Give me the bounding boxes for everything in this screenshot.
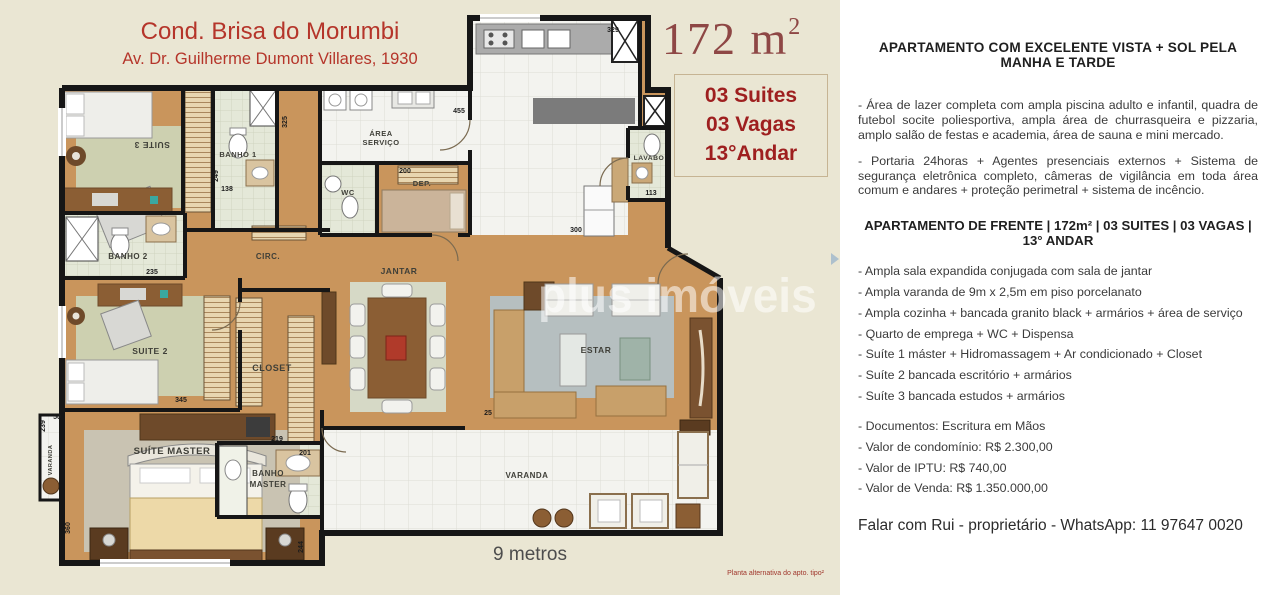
feature-list: - Ampla sala expandida conjugada com sal… [858,264,1258,403]
scale-note: 9 metros [440,544,620,566]
room-label-suite-master: SUÍTE MASTER [134,446,211,457]
feature-item-cozinha: - Ampla cozinha + bancada granito black … [858,306,1258,320]
room-label-estar: ESTAR [581,345,612,355]
feature-item-suite3: - Suíte 3 bancada estudos + armários [858,389,1258,403]
watermark: plus imóveis [538,267,817,324]
room-label-varanda-left: VARANDA [48,445,54,476]
listing-paragraph-portaria: - Portaria 24horas + Agentes presenciais… [858,154,1258,199]
floorplan-panel: Cond. Brisa do Morumbi Av. Dr. Guilherme… [0,0,840,595]
listing-paragraph-lazer: - Área de lazer completa com ampla pisci… [858,98,1258,143]
detail-item-condominio: - Valor de condomínio: R$ 2.300,00 [858,440,1258,454]
room-label-banho-master-1: BANHO [252,469,284,478]
dim-label: 219 [271,436,283,443]
listing-panel: APARTAMENTO COM EXCELENTE VISTA + SOL PE… [840,0,1280,595]
dim-label: 25 [484,410,492,417]
listing-heading-specs: APARTAMENTO DE FRENTE | 172m² | 03 SUITE… [858,218,1258,248]
detail-item-documentos: - Documentos: Escritura em Mãos [858,419,1258,433]
dim-label: 300 [570,227,582,234]
listing-heading-main: APARTAMENTO COM EXCELENTE VISTA + SOL PE… [858,40,1258,70]
dim-label: 200 [399,168,411,175]
room-label-lavabo: LAVABO [634,155,665,162]
room-label-banho-master-2: MASTER [250,480,287,489]
room-label-banho1: BANHO 1 [219,150,256,159]
detail-item-venda: - Valor de Venda: R$ 1.350.000,00 [858,481,1258,495]
feature-item-suite1: - Suíte 1 máster + Hidromassagem + Ar co… [858,347,1258,361]
dim-label: 235 [146,269,158,276]
room-label-wc: WC [341,188,355,197]
room-label-banho2: BANHO 2 [108,252,148,261]
dim-label: 244 [298,541,305,553]
room-label-dep: DEP. [413,179,432,188]
dim-label: 249 [213,170,220,182]
dim-label: 345 [175,397,187,404]
room-label-suite2: SUITE 2 [132,346,168,356]
feature-item-varanda: - Ampla varanda de 9m x 2,5m em piso por… [858,285,1258,299]
room-label-area-servico-1: ÁREA [369,129,392,138]
detail-list: - Documentos: Escritura em Mãos - Valor … [858,419,1258,495]
dim-label: 360 [65,522,72,534]
dim-label: 113 [645,190,656,197]
room-label-circ: CIRC. [256,252,280,261]
feature-item-suite2: - Suíte 2 bancada escritório + armários [858,368,1258,382]
dim-label: 455 [453,108,465,115]
room-label-suite3: SUITE 3 [134,140,170,150]
room-label-jantar: JANTAR [381,266,418,276]
plan-footnote: Planta alternativa do apto. tipo² [690,570,824,577]
contact-line: Falar com Rui - proprietário - WhatsApp:… [858,517,1258,535]
dim-label: 50 [53,414,61,421]
dim-label: 329 [607,27,619,34]
dim-label: 201 [299,450,311,457]
detail-item-iptu: - Valor de IPTU: R$ 740,00 [858,461,1258,475]
feature-item-sala: - Ampla sala expandida conjugada com sal… [858,264,1258,278]
dim-label: 239 [40,420,47,432]
feature-item-quarto: - Quarto de emprega + WC + Dispensa [858,327,1258,341]
dim-label: 325 [282,116,289,128]
dim-label: 138 [221,186,233,193]
room-label-closet: CLOSET [252,363,292,373]
triangle-artifact-icon [831,253,839,265]
room-label-area-servico-2: SERVIÇO [362,138,399,147]
room-label-varanda: VARANDA [506,471,549,480]
